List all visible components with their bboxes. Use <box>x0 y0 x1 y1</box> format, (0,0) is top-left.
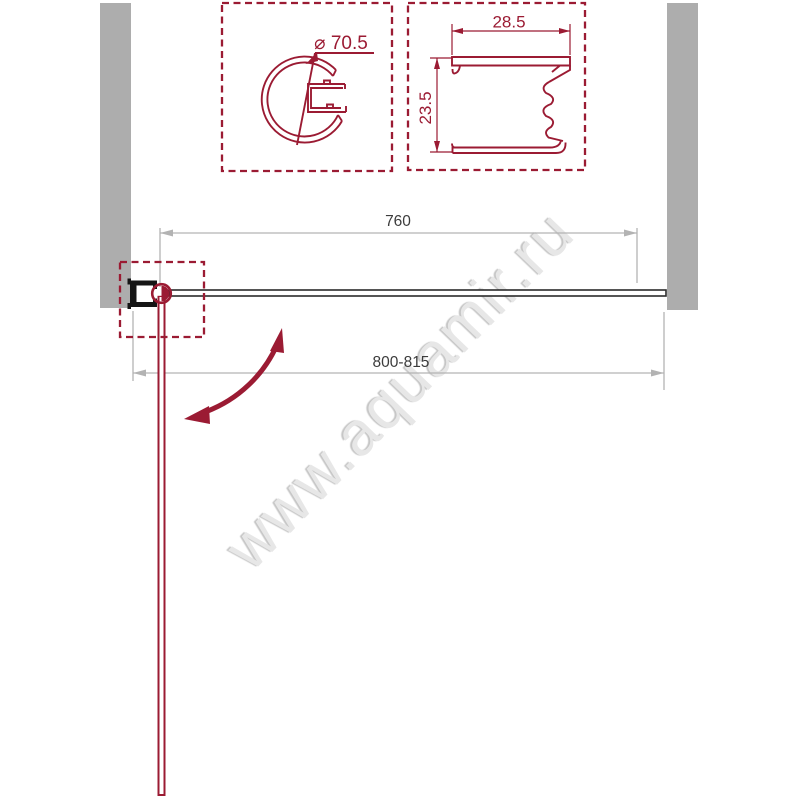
wall-profile-width-label: 28.5 <box>492 13 525 32</box>
circle-profile-diameter-label: ⌀ 70.5 <box>314 33 368 54</box>
dim-arrow-left-icon <box>133 370 146 377</box>
wall-profile-height-dimension: 23.5 <box>416 58 453 152</box>
swing-arrowhead-up-icon <box>270 328 284 353</box>
glass-width-label: 760 <box>385 213 411 230</box>
swing-arrowhead-left-icon <box>184 406 210 424</box>
right-wall <box>667 3 698 310</box>
opening-width-dimension: 800-815 <box>133 311 664 390</box>
dim-arrow-right-icon <box>651 370 664 377</box>
glass-panel <box>169 290 666 296</box>
pivot-notch <box>157 291 162 296</box>
wall-profile-width-dimension: 28.5 <box>452 13 570 56</box>
technical-drawing: www.aquamir.ru <box>0 0 800 800</box>
dim-arrow-down-icon <box>434 141 440 152</box>
dim-arrow-right-icon <box>624 230 637 237</box>
circle-profile-detail: ⌀ 70.5 <box>222 3 392 171</box>
dim-arrow-left-icon <box>452 28 463 34</box>
glass-width-dimension: 760 <box>160 213 637 287</box>
wall-profile-drawing <box>452 57 570 153</box>
dim-arrow-right-icon <box>559 28 570 34</box>
detail-box-outline <box>222 3 392 171</box>
shower-door-plan-svg: ⌀ 70.5 28.5 23.5 <box>0 0 800 800</box>
dim-arrow-up-icon <box>434 58 440 69</box>
circle-profile-drawing <box>262 53 374 145</box>
dim-arrow-left-icon <box>160 230 173 237</box>
wall-profile-height-label: 23.5 <box>416 91 435 124</box>
opening-width-label: 800-815 <box>373 354 430 371</box>
door-panel <box>159 296 165 795</box>
wall-profile-detail: 28.5 23.5 <box>408 3 585 170</box>
door-swing-arrow <box>184 328 284 424</box>
